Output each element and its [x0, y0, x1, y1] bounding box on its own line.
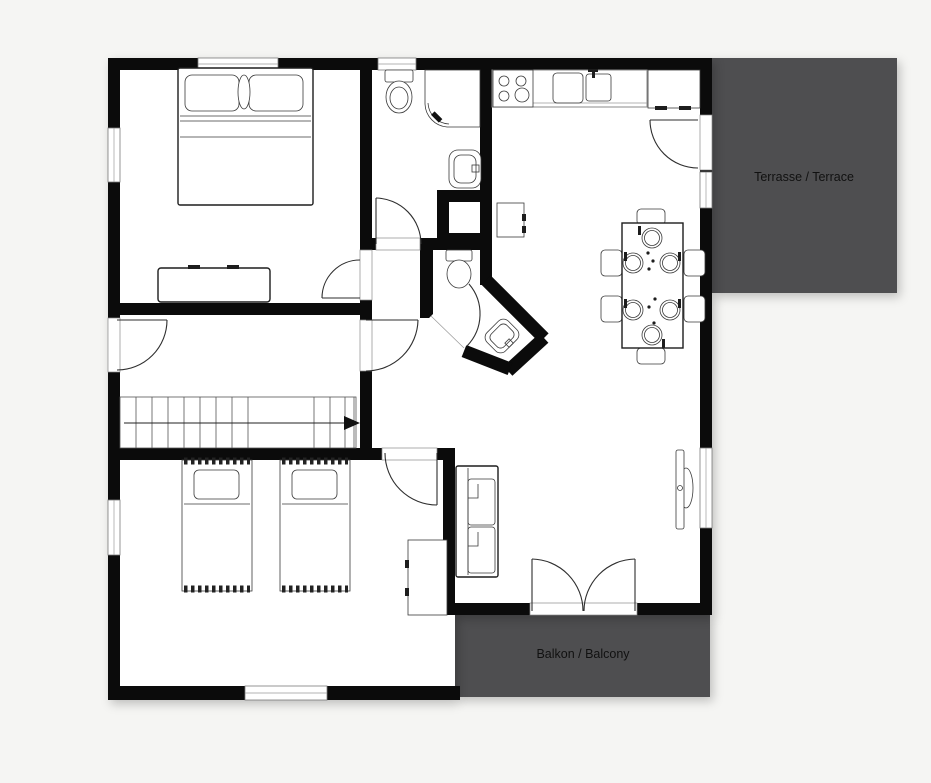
pillow-left	[185, 75, 239, 111]
balcony-area: Balkon / Balcony	[455, 615, 710, 697]
terrace-area: Terrasse / Terrace	[712, 58, 897, 293]
cooktop	[493, 70, 533, 107]
dining-chair	[684, 250, 705, 276]
opening-entry-door	[108, 318, 120, 372]
opening-bedroom2-door	[382, 448, 437, 460]
window-bedroom1-left	[108, 128, 120, 182]
opening-hall-door	[360, 320, 372, 371]
toilet	[385, 70, 413, 113]
wall-wc-left	[420, 250, 433, 318]
corner-shower	[425, 70, 480, 127]
dining-chair	[684, 296, 705, 322]
wall-bedroom2-top-jamb	[437, 448, 455, 460]
window-bathroom-top	[378, 58, 416, 70]
window-living-right-lower	[700, 448, 712, 528]
dining-chair	[637, 348, 665, 364]
pillow	[292, 470, 337, 499]
wc-toilet	[446, 250, 472, 288]
kitchen-appliance	[648, 70, 700, 110]
terrace-label: Terrasse / Terrace	[754, 170, 854, 184]
pillow-right	[249, 75, 303, 111]
double-bed	[178, 68, 313, 205]
sofa	[456, 466, 498, 577]
kitchen	[492, 69, 700, 110]
dining-chair	[601, 296, 622, 322]
window-bedroom2-bottom	[245, 686, 327, 700]
hall-cabinet	[497, 203, 526, 237]
pillow	[194, 470, 239, 499]
wall-kitchen-left	[480, 58, 492, 285]
bedroom2-cabinet	[405, 540, 447, 615]
opening-bedroom1-door	[360, 250, 372, 300]
window-bedroom2-left	[108, 500, 120, 555]
bathroom-sink	[449, 150, 481, 188]
wall-bath-bottom-jamb	[372, 238, 376, 250]
wall-hall-bottom	[360, 448, 384, 460]
single-bed-2	[280, 460, 350, 591]
dining-chair	[601, 250, 622, 276]
wall-bedroom1-right	[360, 58, 372, 250]
shaft-cavity	[449, 202, 480, 233]
dresser	[158, 265, 270, 302]
wall-stair-right	[360, 371, 372, 460]
opening-bathroom-door	[376, 238, 420, 250]
floor-plan: Terrasse / Terrace Balkon / Balcony	[0, 0, 931, 783]
window-living-right-upper	[700, 172, 712, 208]
wall-corridor-top	[108, 303, 372, 315]
single-bed-1	[182, 460, 252, 591]
pillow-roll	[238, 75, 250, 109]
balcony-label: Balkon / Balcony	[536, 647, 630, 661]
dining-table	[622, 223, 683, 348]
opening-terrace-door	[700, 115, 712, 170]
